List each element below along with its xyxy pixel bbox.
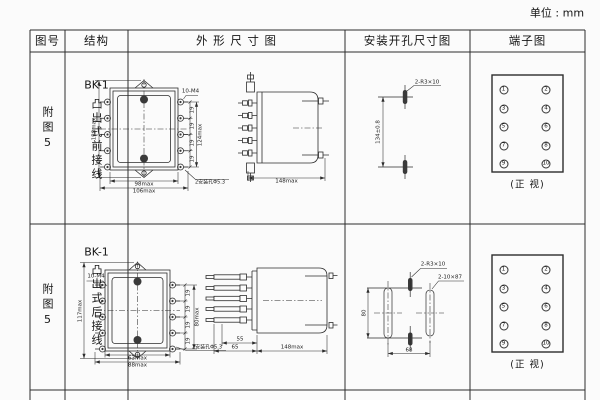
terminal-pin: 7 [499,141,508,150]
row1-front-dimensions [95,81,229,192]
row1-front-span-dim: 124max [198,123,204,145]
row2-fig-no: 附图5 [42,283,53,330]
row2-front-pitch-dim: 19 [186,290,192,297]
row2-front-width-body-dim: 63max [128,356,147,362]
header-outline: 外 形 尺 寸 图 [196,35,277,47]
row2-front-pitch-dim: 19 [186,306,192,313]
row1-mounting-drawing [378,85,441,179]
terminal-pin: 4 [542,104,551,113]
row1-front-height-dim: 138max [92,118,98,140]
terminal-pin: 8 [542,321,551,330]
row1-mounting-spacing-dim: 134±0.8 [376,120,382,144]
datasheet-page: 单位 : mm 图号 结构 外 形 尺 寸 图 安装开孔尺寸图 端子图 附图5 … [0,0,600,400]
row1-front-pitch-dim: 19 [190,123,196,130]
terminal-pin: 7 [499,321,508,330]
row1-terminal-caption: (正 视) [510,180,544,190]
row2-mounting-cutouts-note: 2-10×87 [438,275,462,281]
terminal-pin: 3 [499,284,508,293]
header-structure: 结构 [84,35,109,47]
header-terminal: 端子图 [509,35,547,47]
terminal-pin: 2 [542,86,551,95]
terminal-pin: 4 [542,284,551,293]
row1-side-depth-dim: 148max [275,179,297,185]
row2-outline-front-drawing [95,262,180,360]
row2-side-front-dim: 65 [232,345,239,351]
row1-mounting-slots-note: 2-R3×10 [415,80,439,86]
row1-front-width-overall-dim: 106max [133,189,155,195]
row2-front-height-dim: 117max [78,299,84,321]
row1-front-holes-note: 2安装孔Φ5.3 [195,180,225,185]
row2-model: BK-1 [84,247,109,258]
terminal-pin: 1 [499,266,508,275]
row1-front-pitch-dim: 19 [190,107,196,114]
row2-mounting-pitch-dim: 68 [406,348,413,354]
row2-front-pitch-dim: 19 [186,322,192,329]
terminal-pin: 6 [542,123,551,132]
row1-outline-side-drawing [238,72,329,182]
terminal-pin: 5 [499,123,508,132]
terminal-pin: 3 [499,104,508,113]
row2-front-width-overall-dim: 88max [128,363,147,369]
row1-front-screws-note: 10-M4 [182,89,199,95]
row1-front-pitch-dim: 19 [190,155,196,162]
row2-front-holes-note: 2安装孔Φ5.3 [192,345,222,350]
terminal-pin: 2 [542,266,551,275]
row2-side-stud-dim: 55 [237,337,244,343]
terminal-pin: 1 [499,86,508,95]
row1-fig-no: 附图5 [42,106,53,153]
terminal-pin: 9 [499,340,508,349]
terminal-pin: 10 [542,340,551,349]
terminal-pin: 8 [542,141,551,150]
terminal-pin: 10 [542,160,551,169]
header-fig-no: 图号 [35,35,60,47]
row2-mounting-span-dim: 80 [362,310,368,317]
row2-mounting-drawing [366,269,464,358]
unit-label: 单位 : mm [530,8,584,19]
row2-front-pitch-dim: 19 [186,338,192,345]
row2-mounting-slots-note: 2-R3×10 [421,262,445,268]
row1-model: BK-1 [84,80,109,91]
row2-front-screws-note: 10-M4 [87,274,104,280]
row2-front-span-dim: 80max [195,308,201,327]
terminal-pin: 6 [542,303,551,312]
terminal-pin: 9 [499,160,508,169]
row2-terminal-caption: (正 视) [510,360,544,370]
row1-outline-front-drawing [100,79,188,179]
header-mounting: 安装开孔尺寸图 [364,35,452,47]
row2-side-depth-dim: 148max [281,345,303,351]
row1-front-pitch-dim: 19 [190,139,196,146]
row1-front-width-body-dim: 98max [135,182,154,188]
terminal-pin: 5 [499,303,508,312]
row2-outline-side-drawing [206,268,338,333]
